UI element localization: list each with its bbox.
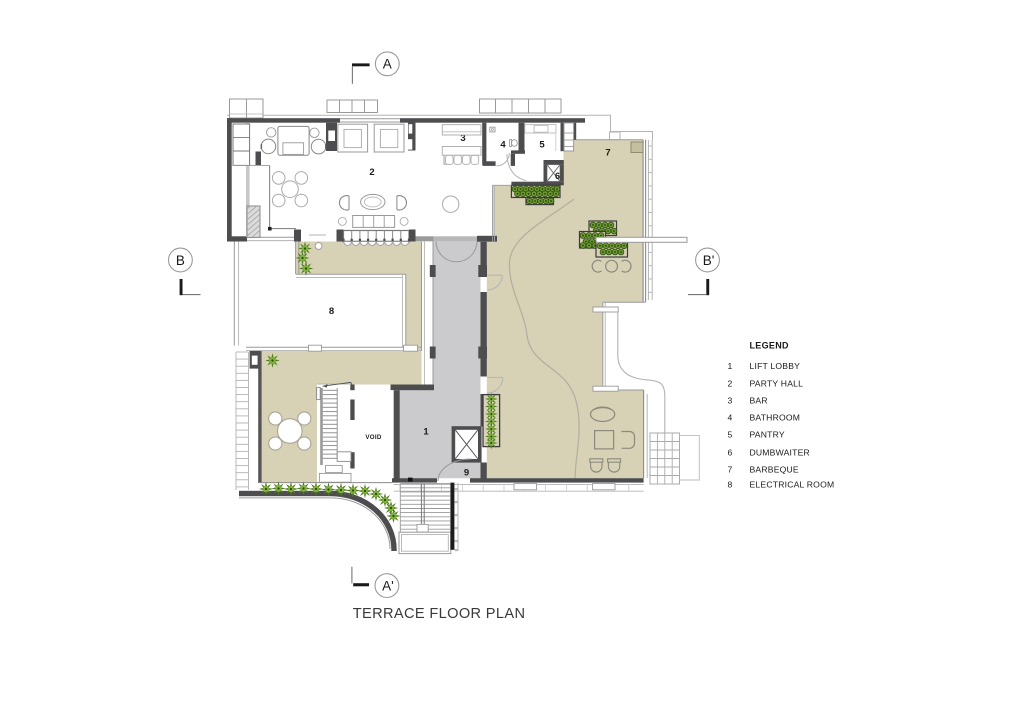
svg-text:6: 6 xyxy=(555,171,560,181)
svg-text:A: A xyxy=(383,57,392,72)
svg-text:2: 2 xyxy=(728,378,733,388)
svg-text:B': B' xyxy=(703,253,715,268)
svg-text:BARBEQUE: BARBEQUE xyxy=(750,464,799,474)
svg-text:DUMBWAITER: DUMBWAITER xyxy=(750,447,810,457)
svg-text:2: 2 xyxy=(369,167,374,178)
svg-text:7: 7 xyxy=(728,464,733,474)
svg-text:5: 5 xyxy=(728,430,733,440)
svg-text:A': A' xyxy=(382,578,394,593)
svg-text:PARTY HALL: PARTY HALL xyxy=(750,378,804,388)
svg-text:LIFT LOBBY: LIFT LOBBY xyxy=(750,361,801,371)
svg-text:B: B xyxy=(176,253,185,268)
svg-text:BAR: BAR xyxy=(750,395,768,405)
svg-text:LEGEND: LEGEND xyxy=(750,341,790,351)
svg-text:7: 7 xyxy=(605,148,610,159)
svg-text:4: 4 xyxy=(728,412,733,422)
svg-text:TERRACE FLOOR PLAN: TERRACE FLOOR PLAN xyxy=(353,606,526,622)
svg-text:1: 1 xyxy=(728,361,733,371)
svg-text:1: 1 xyxy=(423,427,429,438)
svg-text:8: 8 xyxy=(329,306,334,317)
svg-text:8: 8 xyxy=(728,479,733,489)
svg-text:ELECTRICAL ROOM: ELECTRICAL ROOM xyxy=(750,479,835,489)
svg-text:PANTRY: PANTRY xyxy=(750,430,785,440)
svg-text:3: 3 xyxy=(728,395,733,405)
svg-text:4: 4 xyxy=(500,140,506,151)
svg-text:BATHROOM: BATHROOM xyxy=(750,412,801,422)
svg-text:6: 6 xyxy=(728,447,733,457)
svg-text:5: 5 xyxy=(539,140,545,151)
svg-text:9: 9 xyxy=(464,468,469,479)
svg-text:VOID: VOID xyxy=(365,434,382,441)
